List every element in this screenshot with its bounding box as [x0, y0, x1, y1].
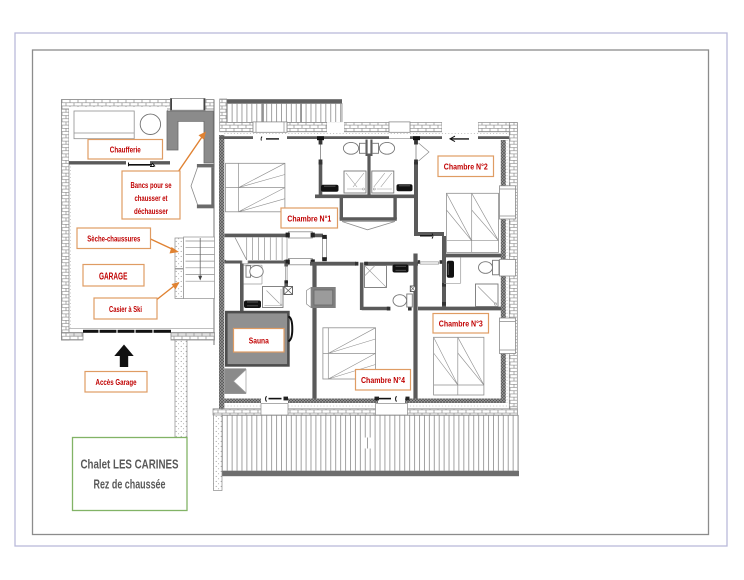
svg-text:Casier à Ski: Casier à Ski	[109, 305, 142, 314]
svg-text:Sauna: Sauna	[249, 336, 269, 345]
svg-text:Chambre N°4: Chambre N°4	[361, 376, 405, 385]
svg-text:Chambre N°3: Chambre N°3	[439, 320, 483, 329]
svg-text:Accès Garage: Accès Garage	[96, 378, 137, 387]
svg-text:Chambre N°2: Chambre N°2	[444, 163, 488, 172]
svg-text:déchausser: déchausser	[134, 207, 169, 216]
svg-text:Bancs pour se: Bancs pour se	[131, 181, 172, 190]
svg-text:Chalet LES CARINES: Chalet LES CARINES	[81, 458, 179, 472]
svg-text:Chaufferie: Chaufferie	[110, 146, 141, 155]
svg-text:Chambre N°1: Chambre N°1	[287, 215, 331, 224]
svg-text:chausser et: chausser et	[135, 194, 168, 203]
svg-text:Sèche-chaussures: Sèche-chaussures	[87, 235, 140, 244]
svg-text:Rez de chaussée: Rez de chaussée	[94, 478, 166, 492]
svg-text:GARAGE: GARAGE	[99, 271, 128, 283]
